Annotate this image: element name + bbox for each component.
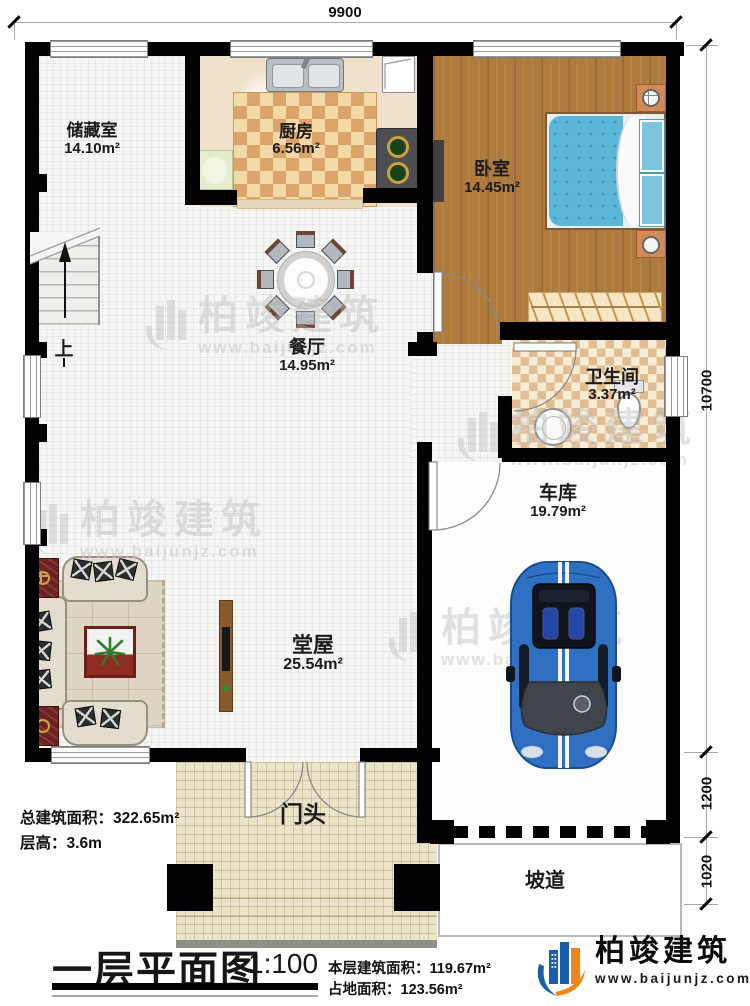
garage-interior-door — [429, 462, 500, 530]
dim-ramp-depth: 1020 — [699, 842, 716, 902]
summary-floor-height: 层高：3.6m — [20, 831, 102, 853]
title-underline — [52, 983, 318, 990]
stairs-up-tick — [63, 358, 65, 367]
dim-extension — [684, 752, 718, 753]
bathroom-door — [514, 343, 576, 411]
summary-total-area: 总建筑面积：322.65m² — [20, 806, 179, 828]
room-area-bedroom: 14.45m² — [464, 179, 520, 196]
summary-total-area-label: 总建筑面积： — [20, 810, 113, 827]
room-area-bathroom: 3.37m² — [588, 386, 636, 403]
room-label-storage: 储藏室 — [67, 116, 118, 141]
dim-extension — [14, 24, 15, 40]
title-underline-thin — [52, 995, 318, 997]
summary-footprint-value: 123.56m² — [401, 982, 463, 998]
summary-floor-area-value: 119.67m² — [430, 961, 491, 977]
room-label-hall: 堂屋 — [292, 629, 334, 659]
summary-total-area-value: 322.65m² — [113, 810, 179, 827]
dim-height-right: 10700 — [699, 361, 716, 421]
page-title-scale: 1:100 — [248, 948, 318, 980]
room-label-kitchen: 厨房 — [279, 117, 313, 142]
room-area-garage: 19.79m² — [530, 503, 586, 520]
brand-name: 柏竣建筑 — [595, 936, 750, 968]
room-label-dining: 餐厅 — [289, 333, 325, 359]
room-label-porch: 门头 — [280, 795, 326, 829]
dimension-line-top — [14, 22, 676, 23]
room-area-kitchen: 6.56m² — [272, 140, 320, 157]
room-label-ramp: 坡道 — [525, 864, 565, 893]
room-label-bedroom: 卧室 — [474, 155, 510, 181]
stairs-break-and-arrow — [30, 228, 100, 318]
bedroom-door — [434, 272, 498, 332]
car — [506, 562, 621, 768]
brand-logo-icon — [531, 936, 589, 1000]
dim-extension — [676, 24, 677, 40]
room-area-storage: 14.10m² — [64, 140, 120, 157]
dim-extension — [684, 904, 718, 905]
summary-floor-area-label: 本层建筑面积： — [328, 961, 430, 977]
summary-footprint: 占地面积：123.56m² — [328, 978, 463, 999]
floor-plan: 柏竣建筑 www.baijunjz.com 柏竣建筑 www.baijunjz.… — [0, 0, 750, 1006]
brand-logo: 柏竣建筑 www.baijunjz.com — [531, 936, 750, 1000]
summary-floor-height-label: 层高： — [20, 835, 67, 852]
dim-extension — [684, 837, 718, 838]
kitchen-flue-fold-line — [385, 59, 411, 89]
room-area-hall: 25.54m² — [283, 656, 343, 674]
coffee-table-plant-icon — [96, 638, 124, 664]
room-label-garage: 车库 — [539, 478, 577, 505]
brand-website: www.baijunjz.com — [595, 971, 750, 986]
dim-garage-front: 1200 — [699, 764, 716, 824]
summary-footprint-label: 占地面积： — [328, 982, 401, 998]
summary-floor-area: 本层建筑面积：119.67m² — [328, 957, 491, 978]
room-area-dining: 14.95m² — [279, 357, 335, 374]
stairs-up-label: 上 — [54, 334, 73, 361]
dim-width-top: 9900 — [305, 4, 385, 21]
summary-floor-height-value: 3.6m — [67, 835, 102, 852]
